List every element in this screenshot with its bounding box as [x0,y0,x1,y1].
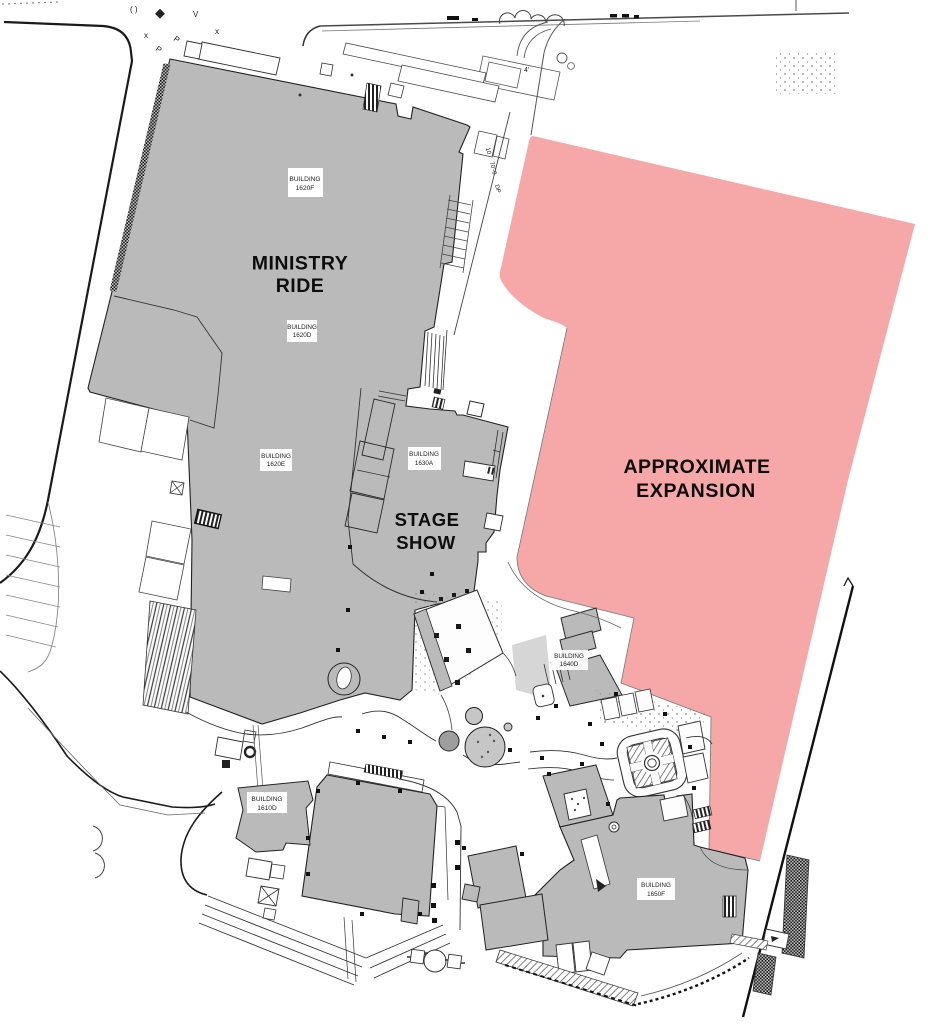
svg-text:BUILDING: BUILDING [554,653,584,660]
svg-text:BUILDING: BUILDING [251,796,282,803]
svg-text:V: V [193,10,199,19]
svg-text:1620E: 1620E [267,461,285,468]
svg-text:EXPANSION: EXPANSION [636,480,756,502]
svg-text:MINISTRY: MINISTRY [252,253,348,275]
svg-text:1650F: 1650F [647,891,665,898]
svg-text:RIDE: RIDE [276,275,325,297]
svg-text:BUILDING: BUILDING [641,882,671,889]
svg-text:x: x [144,31,148,40]
svg-text:1630A: 1630A [415,460,434,467]
svg-text:x: x [215,27,219,36]
svg-text:STAGE: STAGE [395,509,460,530]
svg-text:BUILDING: BUILDING [409,451,439,458]
svg-text:APPROXIMATE: APPROXIMATE [623,456,770,478]
svg-text:BUILDING: BUILDING [289,176,320,183]
svg-text:BUILDING: BUILDING [287,324,317,331]
svg-text:1620D: 1620D [293,332,312,339]
svg-text:1620F: 1620F [296,185,315,192]
svg-text:SHOW: SHOW [396,532,456,553]
svg-text:1640D: 1640D [560,661,579,668]
svg-text:( ): ( ) [130,5,138,14]
svg-text:4': 4' [524,67,529,74]
svg-text:1610D: 1610D [257,805,277,812]
svg-text:BUILDING: BUILDING [261,453,291,460]
